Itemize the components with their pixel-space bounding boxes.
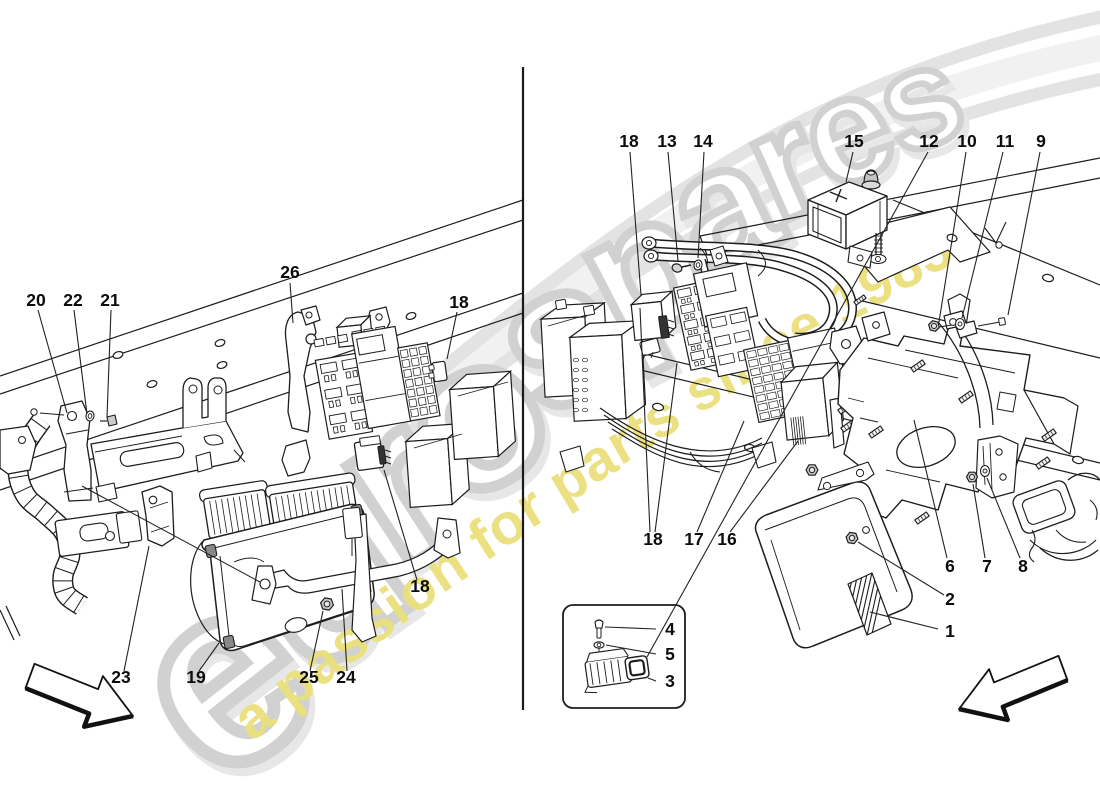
svg-text:22: 22 bbox=[63, 290, 83, 310]
svg-text:7: 7 bbox=[982, 556, 992, 576]
svg-text:12: 12 bbox=[919, 131, 939, 151]
svg-text:13: 13 bbox=[657, 131, 677, 151]
svg-text:17: 17 bbox=[684, 529, 703, 549]
svg-text:9: 9 bbox=[1036, 131, 1046, 151]
svg-text:26: 26 bbox=[280, 262, 300, 282]
svg-text:18: 18 bbox=[643, 529, 663, 549]
svg-text:11: 11 bbox=[996, 131, 1015, 151]
svg-text:16: 16 bbox=[717, 529, 737, 549]
svg-text:8: 8 bbox=[1018, 556, 1028, 576]
svg-text:24: 24 bbox=[336, 667, 356, 687]
svg-text:25: 25 bbox=[299, 667, 319, 687]
svg-text:3: 3 bbox=[665, 671, 675, 691]
svg-text:18: 18 bbox=[410, 576, 430, 596]
svg-text:14: 14 bbox=[693, 131, 713, 151]
svg-text:18: 18 bbox=[449, 292, 469, 312]
svg-text:15: 15 bbox=[844, 131, 864, 151]
svg-text:10: 10 bbox=[957, 131, 977, 151]
svg-text:21: 21 bbox=[100, 290, 120, 310]
svg-text:18: 18 bbox=[619, 131, 639, 151]
svg-text:5: 5 bbox=[665, 644, 675, 664]
svg-text:23: 23 bbox=[111, 667, 131, 687]
svg-text:1: 1 bbox=[945, 621, 955, 641]
svg-text:20: 20 bbox=[26, 290, 46, 310]
svg-text:6: 6 bbox=[945, 556, 955, 576]
svg-text:19: 19 bbox=[186, 667, 206, 687]
svg-text:2: 2 bbox=[945, 589, 955, 609]
